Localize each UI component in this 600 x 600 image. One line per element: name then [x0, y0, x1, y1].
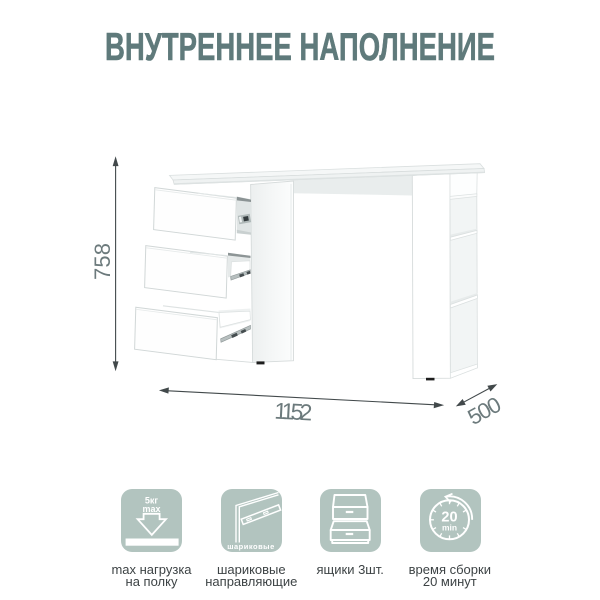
svg-text:шариковые: шариковые [227, 542, 275, 551]
svg-text:min: min [442, 523, 457, 533]
svg-text:max: max [142, 504, 160, 514]
